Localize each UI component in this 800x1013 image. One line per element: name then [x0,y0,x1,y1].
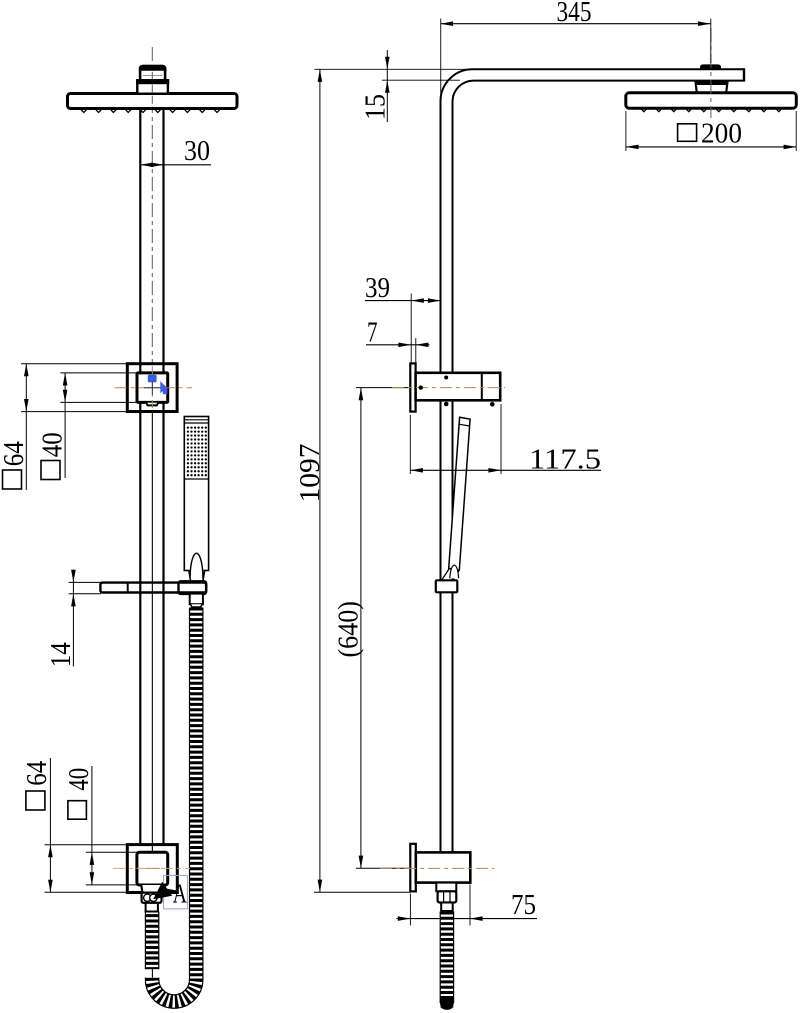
svg-text:7: 7 [367,317,378,349]
svg-text:30: 30 [184,135,210,167]
svg-text:200: 200 [701,117,742,149]
svg-text:14: 14 [45,642,77,667]
svg-text:1097: 1097 [294,444,326,503]
svg-text:64: 64 [0,441,30,466]
svg-text:345: 345 [557,0,592,28]
svg-text:39: 39 [365,272,390,304]
svg-text:A: A [173,879,188,909]
svg-text:64: 64 [21,760,53,785]
svg-text:40: 40 [63,768,95,791]
svg-text:15: 15 [359,94,391,120]
svg-text:40: 40 [37,432,69,457]
svg-text:117.5: 117.5 [529,444,601,476]
svg-text:(640): (640) [333,601,365,658]
svg-text:75: 75 [511,889,536,921]
